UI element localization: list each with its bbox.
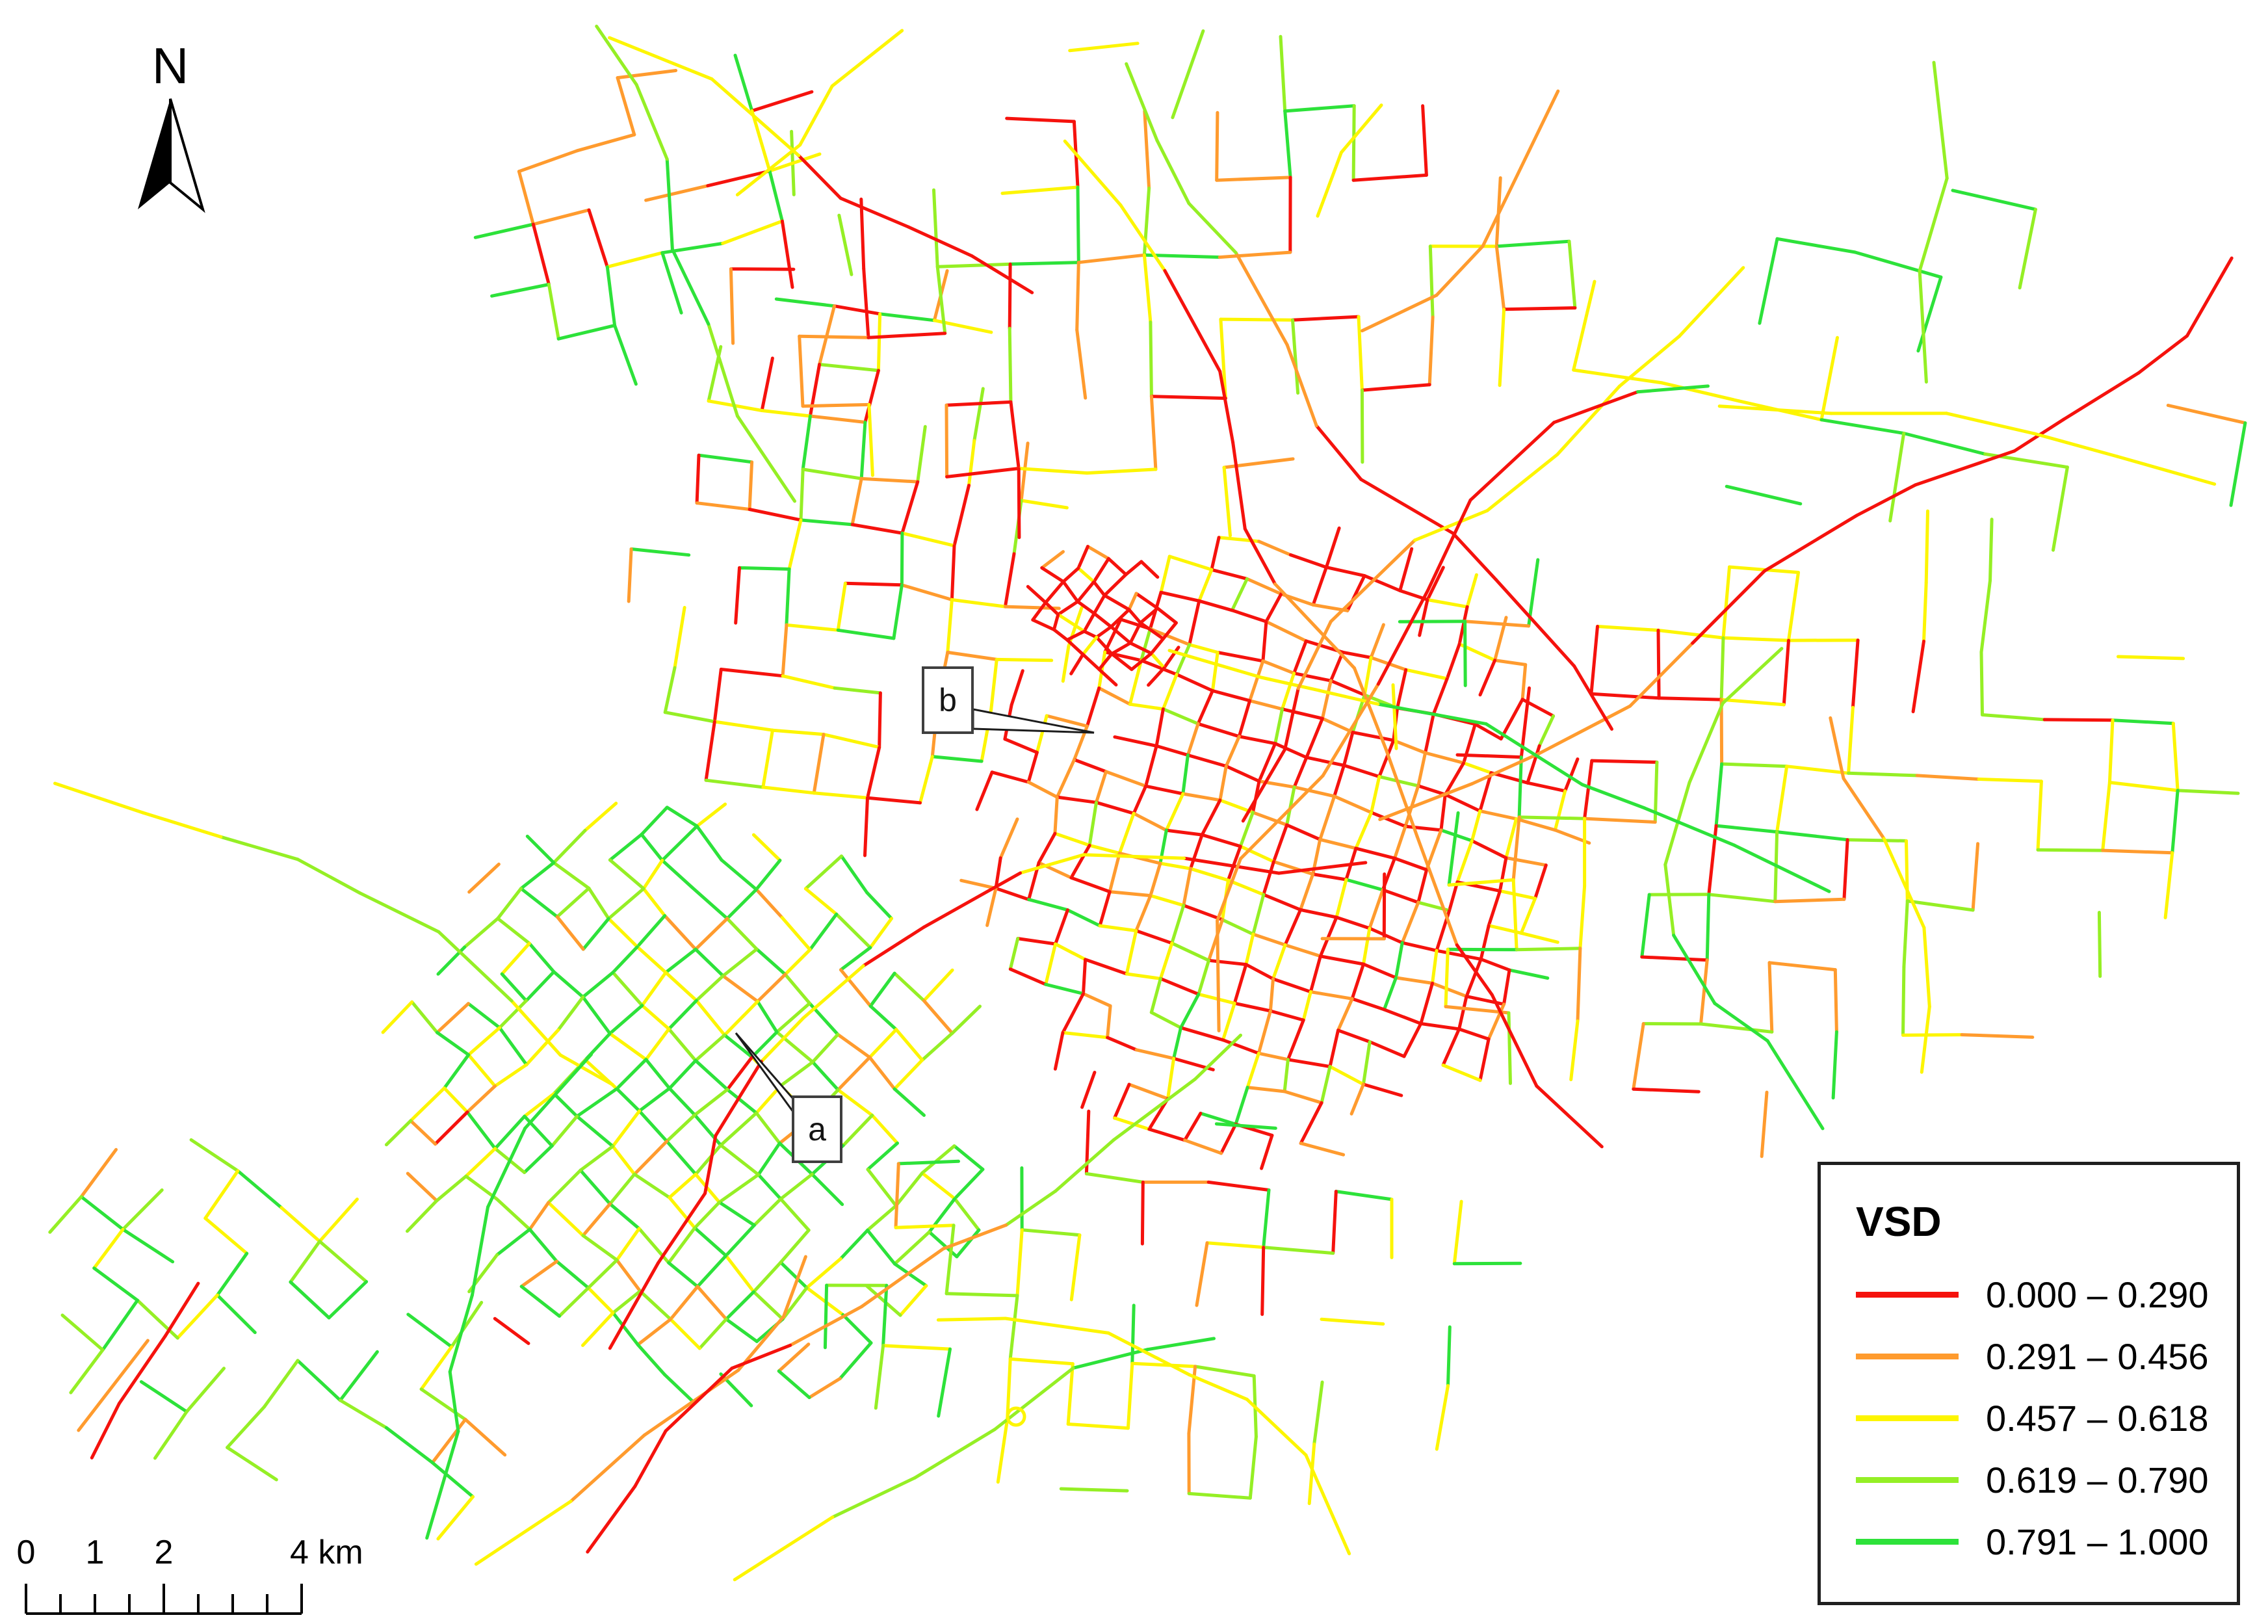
legend-label: 0.619 – 0.790	[1986, 1459, 2209, 1501]
annotation-b-box: b	[922, 666, 974, 734]
scale-bar-label-4km: 4 km	[290, 1536, 363, 1569]
scale-bar-label-0: 0	[17, 1536, 36, 1569]
legend-swatch-green	[1856, 1539, 1959, 1545]
legend-title: VSD	[1856, 1198, 2237, 1246]
annotation-a-box: a	[792, 1095, 842, 1163]
legend-row: 0.291 – 0.456	[1856, 1326, 2237, 1387]
legend-swatch-red	[1856, 1292, 1959, 1298]
map-figure: N 0 1 2 4 km a b VSD 0.000 – 0.290 0.291…	[0, 0, 2268, 1624]
legend-label: 0.291 – 0.456	[1986, 1335, 2209, 1378]
legend-row: 0.000 – 0.290	[1856, 1264, 2237, 1326]
legend-swatch-yellow	[1856, 1415, 1959, 1421]
legend-row: 0.791 – 1.000	[1856, 1511, 2237, 1573]
legend-swatch-orange	[1856, 1354, 1959, 1359]
legend-row: 0.457 – 0.618	[1856, 1387, 2237, 1449]
legend-label: 0.000 – 0.290	[1986, 1274, 2209, 1316]
legend-box: VSD 0.000 – 0.290 0.291 – 0.456 0.457 – …	[1818, 1162, 2240, 1605]
legend-swatch-yellowgreen	[1856, 1477, 1959, 1483]
scale-bar-label-1: 1	[86, 1536, 105, 1569]
scale-bar-label-2: 2	[155, 1536, 174, 1569]
north-arrow-label: N	[152, 40, 189, 91]
legend-label: 0.791 – 1.000	[1986, 1521, 2209, 1563]
scale-bar	[26, 1584, 302, 1614]
leader-line-b	[973, 709, 1094, 733]
legend-label: 0.457 – 0.618	[1986, 1397, 2209, 1439]
legend-row: 0.619 – 0.790	[1856, 1449, 2237, 1511]
north-arrow-icon	[138, 99, 203, 209]
